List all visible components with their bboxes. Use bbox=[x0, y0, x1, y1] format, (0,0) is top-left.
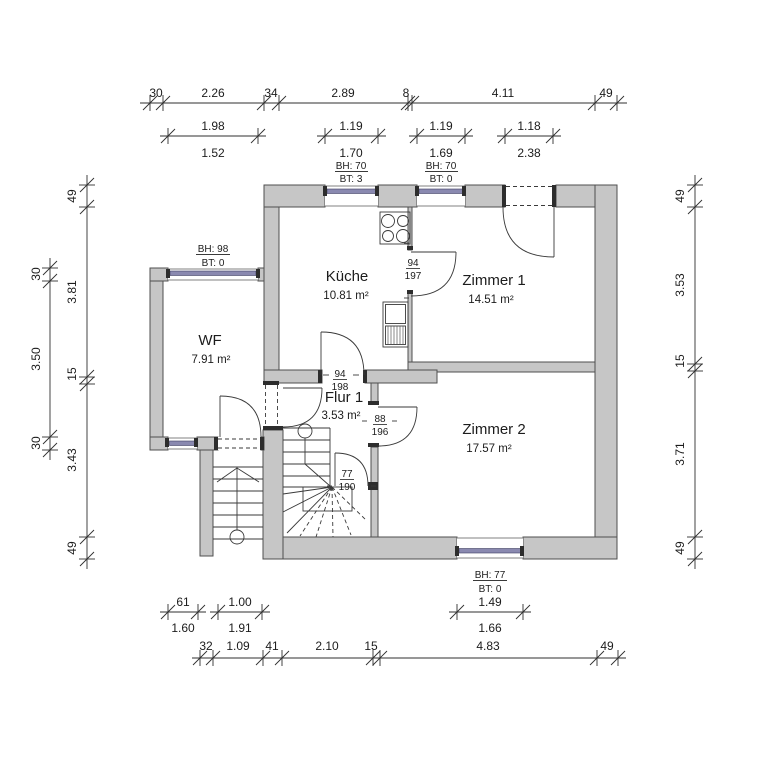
wall-kueche-bottom-2 bbox=[365, 370, 437, 383]
stove-symbol bbox=[380, 212, 410, 244]
dim-win-lower-0: 1.52 bbox=[201, 146, 225, 160]
dim-win-upper-2: 1.19 bbox=[429, 119, 453, 133]
door-label-94-198-w: 94 bbox=[334, 369, 346, 380]
room-name-zimmer2: Zimmer 2 bbox=[462, 421, 525, 438]
dim-win-upper-0: 1.98 bbox=[201, 119, 225, 133]
dim-bottom-0: 32 bbox=[199, 639, 213, 653]
wall-bottom-2 bbox=[523, 537, 617, 559]
window-top-2 bbox=[415, 186, 466, 207]
dim-bot-open-upper-2: 1.49 bbox=[478, 595, 502, 609]
dim-top-3: 2.89 bbox=[331, 86, 355, 100]
dimension-top-openings: 1.98 1.19 1.19 1.18 1.52 1.70 1.69 2.38 bbox=[160, 119, 561, 160]
stair-direction-arrow bbox=[217, 468, 259, 482]
dim-top-2: 34 bbox=[264, 86, 278, 100]
window-kitchen-top bbox=[323, 186, 379, 207]
wall-top-2 bbox=[378, 185, 417, 207]
dim-win-lower-1: 1.70 bbox=[339, 146, 363, 160]
door-entrance-top bbox=[502, 185, 556, 257]
ext-stair-start-circle bbox=[230, 530, 244, 544]
room-area-flur1: 3.53 m² bbox=[322, 410, 361, 422]
dimension-bottom-chain: 32 1.09 41 2.10 15 4.83 49 bbox=[192, 639, 626, 666]
dim-left-outer-2: 30 bbox=[29, 436, 43, 450]
dim-win-lower-3: 2.38 bbox=[517, 146, 541, 160]
floor-plan-drawing: Küche 10.81 m² Zimmer 1 14.51 m² WF 7.91… bbox=[0, 0, 768, 759]
dim-win-upper-1: 1.19 bbox=[339, 119, 363, 133]
dim-right-4: 49 bbox=[673, 541, 687, 555]
dim-bottom-2: 41 bbox=[265, 639, 279, 653]
dim-bottom-5: 4.83 bbox=[476, 639, 500, 653]
wall-left-upper bbox=[264, 207, 279, 383]
dim-bottom-3: 2.10 bbox=[315, 639, 339, 653]
stair-start-circle bbox=[298, 424, 312, 438]
annotation-top2-bh: BH: 70 bbox=[426, 161, 457, 172]
room-area-zimmer1: 14.51 m² bbox=[468, 294, 514, 306]
annotation-kitchen-bh: BH: 70 bbox=[336, 161, 367, 172]
dimension-left-outer: 30 3.50 30 bbox=[29, 258, 58, 460]
dim-left-3: 3.43 bbox=[65, 448, 79, 472]
dimension-bottom-openings: 61 1.00 1.49 1.60 1.91 1.66 bbox=[160, 595, 531, 635]
annex-top-wall-left bbox=[150, 268, 168, 281]
ext-stair-wall-left bbox=[200, 450, 213, 556]
dim-top-4: 8 bbox=[403, 86, 410, 100]
dimension-right: 49 3.53 15 3.71 49 bbox=[673, 175, 703, 569]
room-area-wf: 7.91 m² bbox=[192, 354, 231, 366]
annotation-kitchen-bt: BT: 3 bbox=[340, 174, 363, 185]
dim-right-0: 49 bbox=[673, 189, 687, 203]
radiator-symbol bbox=[383, 302, 408, 347]
dim-left-outer-0: 30 bbox=[29, 267, 43, 281]
dim-left-4: 49 bbox=[65, 541, 79, 555]
exterior-stair bbox=[213, 467, 263, 544]
door-label-94-197-h: 197 bbox=[405, 271, 422, 282]
dim-bot-open-upper-0: 61 bbox=[176, 595, 190, 609]
dim-top-1: 2.26 bbox=[201, 86, 225, 100]
wall-top-3 bbox=[465, 185, 505, 207]
door-passage-wf-flur bbox=[263, 381, 322, 430]
window-annotations: BH: 70 BT: 3 BH: 70 BT: 0 BH: 98 BT: 0 B… bbox=[196, 161, 507, 595]
annex-left-wall bbox=[150, 281, 163, 437]
wall-bottom-1 bbox=[264, 537, 457, 559]
dim-bottom-6: 49 bbox=[600, 639, 614, 653]
room-area-kueche: 10.81 m² bbox=[323, 290, 369, 302]
room-name-zimmer1: Zimmer 1 bbox=[462, 272, 525, 289]
dim-right-3: 3.71 bbox=[673, 442, 687, 466]
annotation-wf-bh: BH: 98 bbox=[198, 244, 229, 255]
window-wf-top bbox=[166, 269, 260, 281]
dim-bot-open-lower-1: 1.91 bbox=[228, 621, 252, 635]
dimension-top-chain: 30 2.26 34 2.89 8 4.11 49 bbox=[140, 86, 627, 111]
door-label-94-198-h: 198 bbox=[332, 382, 349, 393]
door-label-77-190-w: 77 bbox=[341, 469, 353, 480]
dimension-left-inner: 49 3.81 15 3.43 49 bbox=[65, 175, 95, 569]
door-flur-zimmer2 bbox=[362, 401, 417, 447]
annotation-z2-bh: BH: 77 bbox=[475, 570, 506, 581]
floor-plan-page: Küche 10.81 m² Zimmer 1 14.51 m² WF 7.91… bbox=[0, 0, 768, 759]
room-name-kueche: Küche bbox=[326, 268, 369, 285]
annotation-wf-bt: BT: 0 bbox=[202, 258, 225, 269]
room-area-zimmer2: 17.57 m² bbox=[466, 443, 512, 455]
wall-right bbox=[595, 185, 617, 559]
partition-flur-z2-lower bbox=[371, 447, 378, 537]
wall-left-lower bbox=[263, 430, 283, 559]
dim-win-upper-3: 1.18 bbox=[517, 119, 541, 133]
dim-bot-open-upper-1: 1.00 bbox=[228, 595, 252, 609]
wall-top-1 bbox=[264, 185, 325, 207]
window-zimmer2-bottom bbox=[455, 538, 524, 559]
partition-kueche-z1-lower bbox=[408, 292, 412, 370]
door-label-94-197-w: 94 bbox=[407, 258, 419, 269]
room-name-wf: WF bbox=[198, 332, 221, 349]
door-label-77-190-h: 190 bbox=[339, 482, 356, 493]
dim-top-6: 49 bbox=[599, 86, 613, 100]
door-label-88-196-w: 88 bbox=[374, 414, 386, 425]
window-wf-bottom bbox=[165, 438, 198, 450]
dim-bot-open-lower-2: 1.66 bbox=[478, 621, 502, 635]
dim-bot-open-lower-0: 1.60 bbox=[171, 621, 195, 635]
dim-top-5: 4.11 bbox=[492, 86, 515, 100]
annotation-top2-bt: BT: 0 bbox=[430, 174, 453, 185]
door-label-88-196-h: 196 bbox=[372, 427, 389, 438]
dim-left-2: 15 bbox=[65, 367, 79, 381]
dim-left-1: 3.81 bbox=[65, 280, 79, 304]
dim-top-0: 30 bbox=[149, 86, 163, 100]
dim-bottom-1: 1.09 bbox=[226, 639, 250, 653]
annotation-z2-bt: BT: 0 bbox=[479, 584, 502, 595]
dim-right-2: 15 bbox=[673, 354, 687, 368]
interior-stair bbox=[283, 424, 366, 537]
door-wf-exterior bbox=[214, 396, 264, 450]
dim-left-outer-1: 3.50 bbox=[29, 347, 43, 371]
dim-bottom-4: 15 bbox=[364, 639, 378, 653]
dim-left-0: 49 bbox=[65, 189, 79, 203]
dim-win-lower-2: 1.69 bbox=[429, 146, 453, 160]
dim-right-1: 3.53 bbox=[673, 273, 687, 297]
partition-flur-z2-upper bbox=[371, 383, 378, 403]
